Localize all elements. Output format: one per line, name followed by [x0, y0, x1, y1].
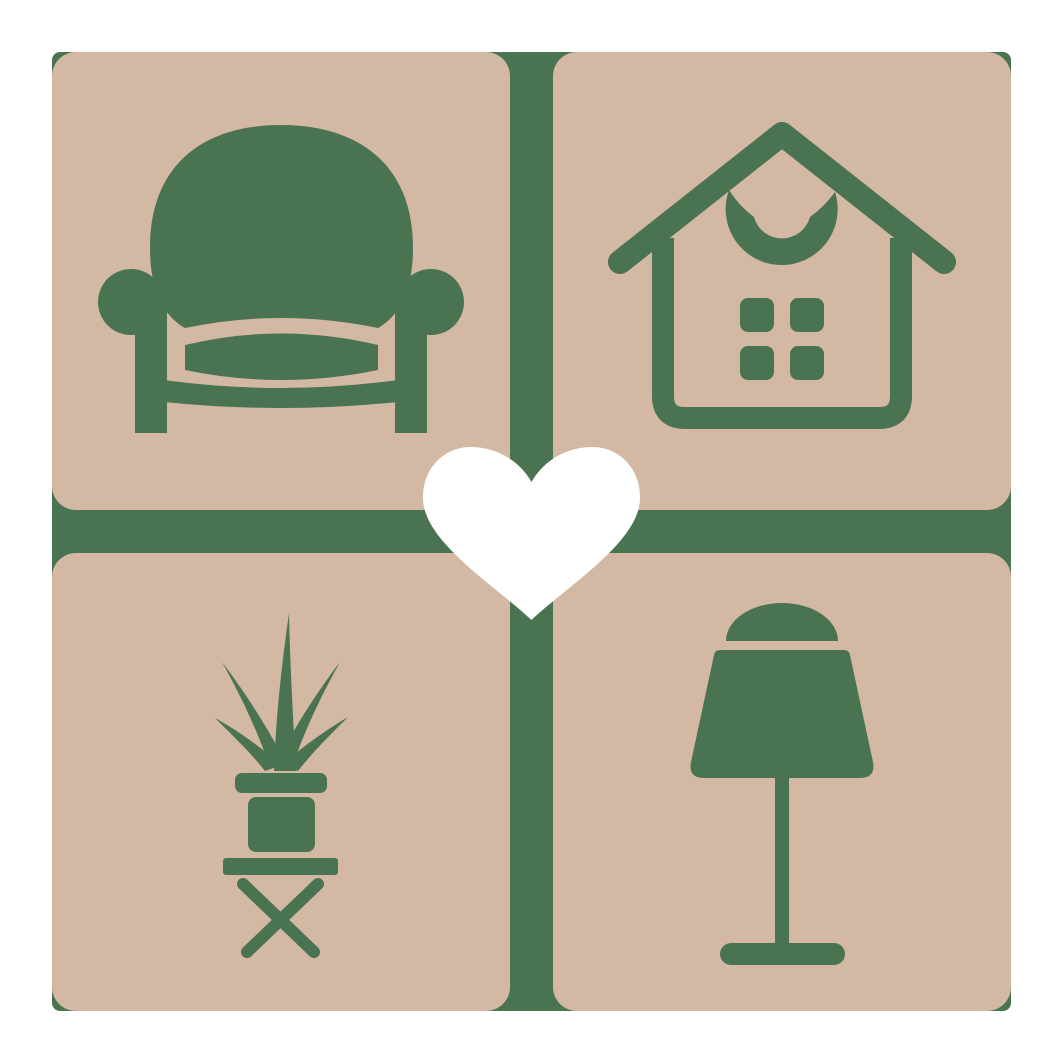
plant-pot-body: [248, 797, 315, 852]
house-window-pane-top-right: [790, 298, 824, 332]
lamp-base: [720, 943, 845, 965]
plant-pot-rim: [235, 773, 327, 793]
armchair-right-leg: [395, 302, 427, 433]
house-window-pane-bottom-right: [790, 346, 824, 380]
tile-top-right: [553, 52, 1011, 510]
house-window-pane-bottom-left: [740, 346, 774, 380]
stool-top: [223, 858, 338, 875]
lamp-shade: [691, 650, 874, 778]
page: { "logo": { "background_color": "#ffffff…: [0, 0, 1063, 1063]
armchair-seat-cushion: [185, 334, 378, 381]
home-decor-logo: [0, 0, 1063, 1063]
armchair-back: [150, 125, 413, 328]
logo-canvas: [0, 0, 1063, 1063]
armchair-left-leg: [135, 302, 167, 433]
lamp-stem: [775, 778, 789, 948]
house-window-pane-top-left: [740, 298, 774, 332]
